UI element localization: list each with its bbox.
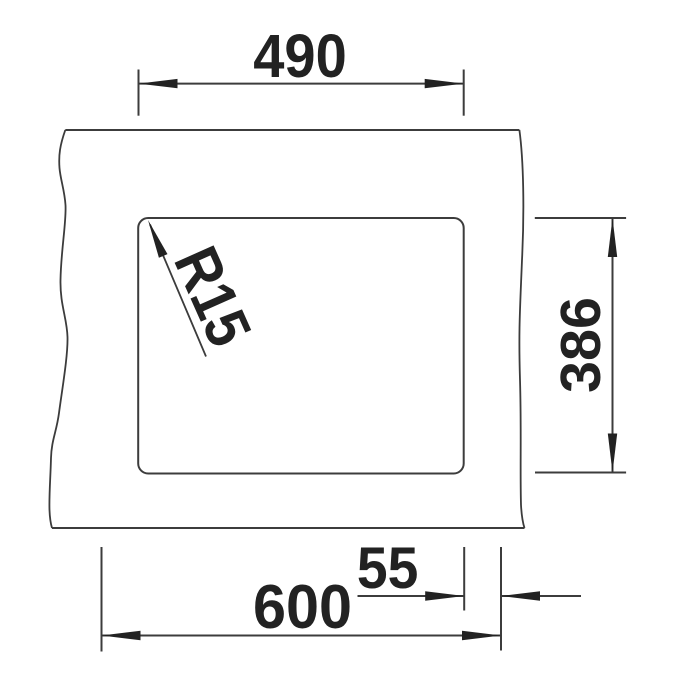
svg-text:55: 55: [357, 536, 419, 601]
svg-text:490: 490: [253, 22, 347, 91]
svg-text:386: 386: [549, 297, 613, 393]
svg-text:600: 600: [253, 573, 352, 642]
